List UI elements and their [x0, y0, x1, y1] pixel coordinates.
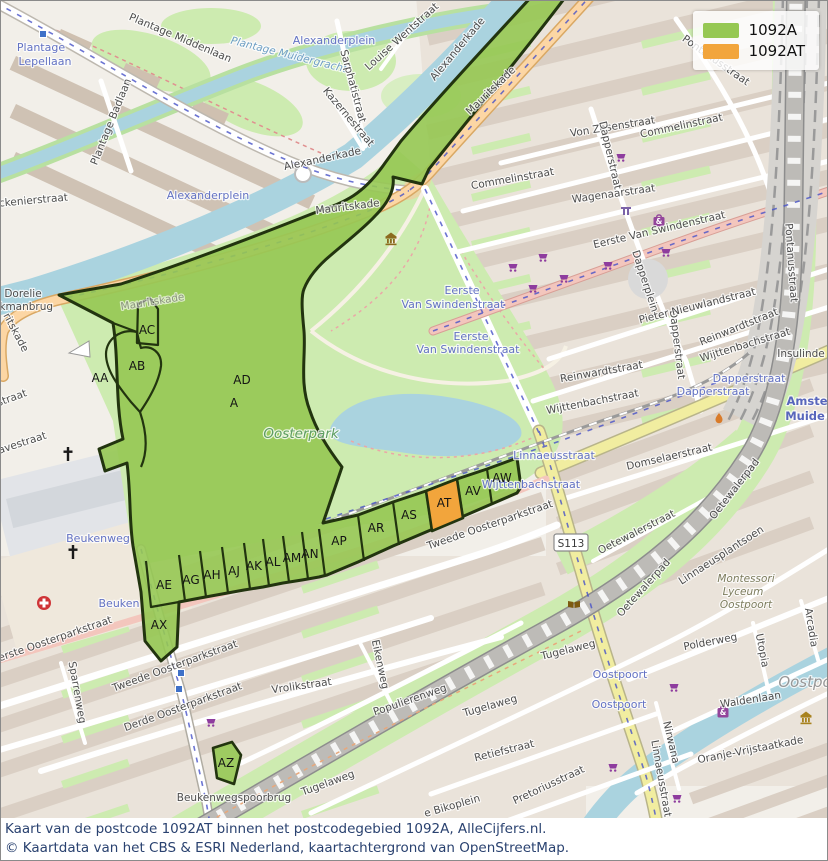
- street-label: Beukenwegspoorbrug: [177, 792, 291, 804]
- street-label: Montessori: [717, 573, 774, 585]
- region-label-AM: AM: [283, 551, 302, 565]
- region-label-AA: AA: [92, 371, 110, 385]
- region-label-AK: AK: [246, 559, 263, 573]
- region-label-AC: AC: [139, 323, 155, 337]
- region-label-AL: AL: [266, 555, 281, 569]
- street-label: Alexanderplein: [167, 189, 250, 202]
- street-label: Oostpoort: [592, 698, 647, 711]
- street-label: Lepellaan: [18, 55, 71, 68]
- caption-line-1: Kaart van de postcode 1092AT binnen het …: [5, 820, 825, 839]
- street-label: Van Swindenstraat: [402, 298, 506, 311]
- map-caption: Kaart van de postcode 1092AT binnen het …: [1, 818, 828, 860]
- region-label-AE: AE: [156, 578, 172, 592]
- legend-swatch-1092at-icon: [703, 44, 739, 59]
- street-label: Beuken: [98, 597, 139, 610]
- street-label: Dapperstraat: [677, 385, 751, 398]
- street-label: akmanbrug: [1, 301, 53, 313]
- street-label: Van Swindenstraat: [417, 343, 521, 356]
- road-shield-s113: S113: [554, 534, 588, 551]
- legend-label-1092a: 1092A: [749, 21, 797, 39]
- map-canvas[interactable]: &&S113 Plantage MiddenlaanPlantageLepell…: [1, 1, 828, 820]
- transit-stop-icon: [176, 686, 183, 693]
- caption-line-2: © Kaartdata van het CBS & ESRI Nederland…: [5, 839, 825, 858]
- street-label: Dapperstraat: [713, 372, 787, 385]
- street-label: Eerste: [453, 330, 488, 343]
- legend-swatch-1092a-icon: [703, 23, 739, 38]
- map-svg: &&S113 Plantage MiddenlaanPlantageLepell…: [1, 1, 828, 820]
- region-label-AS: AS: [401, 508, 417, 522]
- region-label-AJ: AJ: [228, 564, 240, 578]
- street-label: Muide: [785, 409, 825, 423]
- region-label-AV: AV: [465, 484, 481, 498]
- region-label-AZ: AZ: [218, 756, 234, 770]
- street-label: Oostpoort: [593, 668, 648, 681]
- street-label: Amste: [786, 394, 827, 408]
- street-label: Dorelie: [4, 288, 41, 300]
- postcode-map-page: &&S113 Plantage MiddenlaanPlantageLepell…: [0, 0, 828, 861]
- region-label-AB: AB: [129, 359, 145, 373]
- svg-text:S113: S113: [558, 538, 585, 550]
- region-label-AN: AN: [301, 547, 318, 561]
- street-label: Eerste: [444, 284, 479, 297]
- street-label: Alexanderplein: [293, 34, 376, 47]
- legend: 1092A 1092AT: [693, 11, 819, 70]
- street-label: Oosterpark: [263, 426, 339, 442]
- street-label: Linnaeusstraat: [513, 449, 595, 462]
- region-label-AW: AW: [492, 471, 512, 485]
- region-label-AG: AG: [182, 573, 199, 587]
- street-label: Lyceum: [723, 586, 764, 598]
- legend-item-1092at: 1092AT: [703, 42, 805, 60]
- street-label: Plantage: [17, 41, 65, 54]
- region-label-AH: AH: [203, 568, 220, 582]
- region-label-AR: AR: [368, 521, 385, 535]
- legend-label-1092at: 1092AT: [749, 42, 805, 60]
- legend-item-1092a: 1092A: [703, 21, 805, 39]
- street-label: Insulinde: [777, 348, 825, 360]
- region-label-AD: AD: [233, 373, 250, 387]
- hospital-icon: [37, 596, 51, 610]
- region-label-AP: AP: [331, 534, 346, 548]
- region-label-AT: AT: [437, 496, 452, 510]
- street-label: Oostpoort: [720, 599, 773, 611]
- region-label-A: A: [230, 396, 239, 410]
- street-label: Beukenweg: [66, 532, 130, 545]
- street-label: Oostpo: [778, 673, 828, 691]
- region-label-AX: AX: [151, 618, 167, 632]
- transit-stop-icon: [40, 31, 47, 38]
